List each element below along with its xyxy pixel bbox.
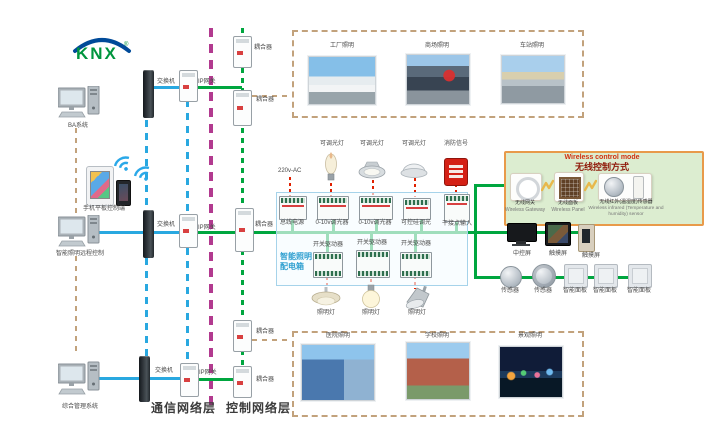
candle-lamp-icon [323, 151, 339, 183]
switch-label: 交换机 [157, 79, 175, 86]
switch-column-line [145, 258, 148, 356]
knx-logo-text: KNX [76, 44, 118, 64]
knx-bus-trunk [474, 184, 477, 279]
coupler-device [235, 208, 254, 252]
knx-logo-reg: ® [124, 42, 128, 48]
photo-label: 工厂照明 [310, 43, 374, 50]
bulb-icon [362, 284, 380, 310]
ba-system-label: BA系统 [56, 123, 100, 130]
actuator-label: 开关驱动器 [356, 240, 388, 247]
knx-bus-line [196, 86, 242, 89]
zone-link-line [252, 339, 292, 341]
coupler-label: 耦合器 [256, 329, 274, 336]
load-label: 可调光灯 [318, 141, 346, 148]
knx-logo: KNX ® [72, 36, 132, 66]
lan-line [154, 86, 179, 89]
ip-gateway-device [179, 70, 198, 102]
touchscreen-icon [545, 222, 571, 246]
switch-actuator-device [313, 252, 343, 278]
gateway-column-line [186, 100, 189, 212]
coupler-label: 耦合器 [254, 45, 272, 52]
wireless-panel-icon [554, 172, 584, 202]
load-label: 消防信号 [442, 141, 470, 148]
lamp-label: 照明灯 [315, 310, 337, 317]
smart-panel-icon [564, 264, 588, 288]
coupler-device [233, 90, 252, 126]
module-label: 总线电源 [278, 220, 306, 227]
coupler-label: 耦合器 [256, 97, 274, 104]
wireless-sensor-icon [598, 173, 652, 201]
wireless-title-cn: 无线控制方式 [504, 162, 700, 172]
panel-title-line2: 配电箱 [280, 262, 312, 272]
coupler-device [233, 36, 252, 68]
shade-lamp-icon [403, 286, 433, 309]
panel-title: 智能照明 配电箱 [280, 252, 312, 273]
module-label: 干接点输入 [442, 221, 472, 228]
wireless-gateway-ring [516, 177, 540, 201]
module-label: 0-10v调光器 [314, 220, 350, 227]
touchscreen-icon [578, 224, 595, 252]
module-label: 可控硅调光 [401, 220, 431, 227]
lan-line [150, 377, 180, 380]
ethernet-switch-icon [143, 70, 154, 118]
load-label: 可调光灯 [400, 141, 428, 148]
smart-panel-icon [594, 264, 618, 288]
coupler-label: 耦合器 [255, 222, 273, 229]
sensor-remote [633, 176, 644, 199]
central-screen-icon [507, 223, 537, 247]
device-label: 中控屏 [508, 251, 536, 258]
actuator-label: 开关驱动器 [400, 241, 432, 248]
ip-gateway-device [179, 214, 198, 248]
switch-actuator-device [356, 250, 390, 278]
gateway-label: IP网关 [199, 370, 217, 377]
module-label: 0-10v调光器 [357, 220, 393, 227]
load-label: 可调光灯 [358, 141, 386, 148]
phone-icon [116, 180, 131, 206]
device-label: 智能面板 [591, 288, 619, 295]
coupler-device [233, 320, 252, 352]
ethernet-switch-icon [139, 356, 150, 402]
device-label: 触摸屏 [577, 253, 605, 260]
wireless-item-en: Wireless infrared (Temperature and humid… [586, 206, 666, 217]
device-label: 传感器 [499, 288, 521, 295]
touchscreen-display [548, 225, 568, 243]
wireless-panel-face [559, 177, 581, 199]
fire-alarm-icon [444, 158, 468, 186]
central-screen-panel [507, 223, 537, 242]
ceiling-lamp-icon [400, 161, 428, 179]
mobile-label: 手机平板控制端 [78, 206, 130, 213]
pc-link-line [75, 256, 77, 354]
lan-line [96, 377, 139, 380]
gateway-column-line [186, 248, 189, 360]
coupler-device [233, 366, 252, 398]
mgmt-system-label: 综合管理系统 [56, 404, 104, 411]
switch-label: 交换机 [155, 368, 173, 375]
lightning-icon [584, 179, 597, 194]
comm-layer-label: 通信网络层 [151, 399, 216, 416]
ip-gateway-device [180, 363, 199, 397]
station-photo [501, 55, 565, 104]
device-label: 触摸屏 [544, 251, 572, 258]
sensor-icon [500, 266, 522, 288]
photo-label: 景观照明 [499, 333, 561, 340]
pc-icon [58, 86, 102, 122]
knx-lighting-system-diagram: 工厂照明 商场照明 车站照明 医院照明 学校照明 景观照明 KNX ® BA系统 [0, 0, 715, 443]
tablet-icon [86, 166, 114, 206]
knx-bus-line [196, 378, 234, 381]
smart-panel-icon [628, 264, 652, 288]
photo-label: 医院照明 [303, 333, 373, 340]
scr-dimmer-device [403, 198, 431, 220]
landscape-photo [499, 346, 563, 398]
pc-icon [58, 215, 102, 251]
downlight-icon [358, 160, 386, 180]
device-label: 传感器 [532, 288, 554, 295]
device-label: 智能面板 [625, 288, 653, 295]
touchscreen-display [582, 229, 590, 243]
photo-label: 商场照明 [406, 43, 468, 50]
bus-power-device [279, 196, 307, 220]
mall-photo [406, 54, 470, 105]
switch-label: 交换机 [157, 222, 175, 229]
sensor-dome [604, 177, 624, 197]
ethernet-switch-icon [143, 210, 154, 258]
hospital-photo [301, 344, 375, 401]
fire-alarm-face [449, 163, 463, 180]
ctrl-layer-label: 控制网络层 [226, 399, 291, 416]
actuator-label: 开关驱动器 [312, 242, 344, 249]
knx-bus-branch-wireless [477, 184, 505, 187]
central-screen-base [512, 244, 530, 246]
gateway-label: IP网关 [198, 225, 216, 232]
pc-icon [58, 360, 102, 402]
lamp-label: 照明灯 [406, 310, 428, 317]
dimmer-device [317, 196, 349, 220]
tablet-screen [90, 171, 110, 199]
pc-link-line [75, 128, 77, 214]
lamp-label: 照明灯 [360, 310, 382, 317]
gateway-label: IP网关 [198, 79, 216, 86]
sensor-icon [532, 264, 556, 288]
wireless-item-cn: 无线红外(温湿度)传感器 [588, 200, 664, 206]
school-photo [406, 342, 470, 400]
factory-photo [308, 56, 376, 105]
panel-title-line1: 智能照明 [280, 252, 312, 262]
lightning-icon [541, 179, 554, 194]
power-label: 220v-AC [278, 168, 301, 175]
wireless-title-en: Wireless control mode [504, 154, 700, 162]
dimmer-device [359, 196, 393, 220]
switch-actuator-device [400, 252, 432, 278]
photo-label: 学校照明 [406, 333, 468, 340]
device-label: 智能面板 [561, 288, 589, 295]
phone-screen [119, 184, 128, 201]
disc-lamp-icon [311, 287, 341, 309]
lan-line [154, 231, 179, 234]
photo-label: 车站照明 [501, 43, 563, 50]
lighting-control-label: 智能照明远程控制 [50, 251, 110, 258]
lan-line [98, 231, 143, 234]
wireless-gateway-icon [510, 173, 542, 201]
dry-contact-device [444, 194, 470, 222]
coupler-label: 耦合器 [256, 377, 274, 384]
